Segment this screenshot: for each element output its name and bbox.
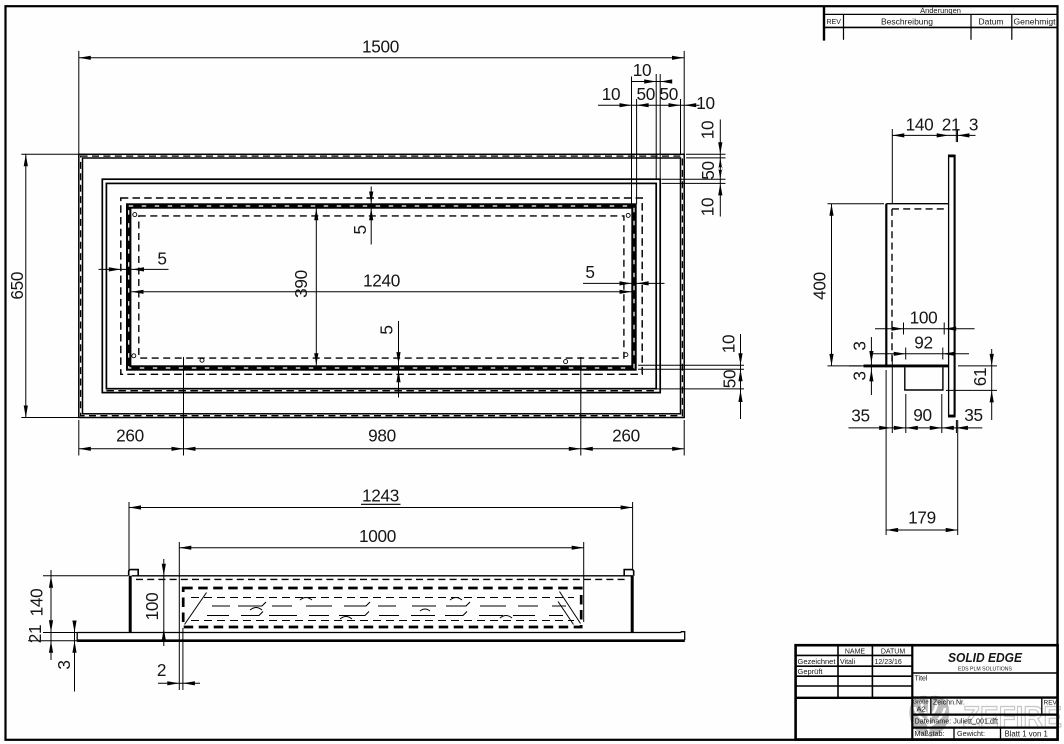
- svg-text:3: 3: [54, 660, 74, 669]
- svg-text:100: 100: [142, 593, 162, 621]
- svg-text:EDS PLM SOLUTIONS: EDS PLM SOLUTIONS: [958, 667, 1012, 673]
- svg-text:61: 61: [970, 368, 990, 387]
- svg-text:21: 21: [942, 114, 961, 134]
- svg-text:10: 10: [602, 84, 621, 104]
- svg-text:3: 3: [850, 371, 870, 380]
- svg-text:Zeichn.Nr.: Zeichn.Nr.: [933, 699, 965, 706]
- svg-text:Beschreibung: Beschreibung: [881, 17, 933, 27]
- svg-text:390: 390: [291, 270, 311, 298]
- svg-text:1240: 1240: [363, 271, 400, 291]
- svg-text:400: 400: [809, 272, 829, 300]
- svg-text:Vitali: Vitali: [840, 659, 855, 666]
- svg-text:1243: 1243: [362, 486, 399, 506]
- svg-text:5: 5: [157, 249, 166, 269]
- svg-text:260: 260: [612, 425, 640, 445]
- svg-text:140: 140: [906, 114, 934, 134]
- svg-text:Dateiname: Juliett_001.dft: Dateiname: Juliett_001.dft: [915, 717, 999, 726]
- svg-text:SOLID EDGE: SOLID EDGE: [948, 651, 1023, 665]
- svg-text:10: 10: [696, 93, 715, 113]
- svg-text:50: 50: [698, 161, 718, 180]
- svg-text:12/23/16: 12/23/16: [875, 659, 902, 666]
- svg-text:1000: 1000: [359, 526, 396, 546]
- svg-text:260: 260: [116, 425, 144, 445]
- svg-text:Geprüft: Geprüft: [798, 667, 824, 676]
- svg-text:21: 21: [25, 625, 45, 644]
- svg-text:10: 10: [697, 198, 717, 217]
- svg-text:5: 5: [585, 262, 594, 282]
- svg-text:980: 980: [368, 425, 396, 445]
- svg-text:Genehmigt: Genehmigt: [1014, 17, 1057, 27]
- svg-text:3: 3: [969, 114, 978, 134]
- svg-text:DATUM: DATUM: [881, 648, 906, 655]
- svg-text:Gewicht:: Gewicht:: [957, 729, 985, 738]
- svg-text:NAME: NAME: [845, 648, 866, 655]
- svg-text:92: 92: [914, 333, 933, 353]
- svg-text:Maßstab:: Maßstab:: [915, 729, 945, 738]
- svg-text:REV: REV: [826, 19, 841, 26]
- svg-text:10: 10: [633, 60, 652, 80]
- svg-text:10: 10: [697, 121, 717, 140]
- svg-text:50: 50: [719, 370, 739, 389]
- svg-text:A2: A2: [917, 705, 926, 714]
- svg-text:Gezeichnet: Gezeichnet: [798, 657, 837, 666]
- svg-text:140: 140: [27, 589, 47, 617]
- svg-text:35: 35: [964, 405, 983, 425]
- svg-text:REV: REV: [1044, 699, 1058, 706]
- svg-text:Datum: Datum: [978, 17, 1003, 27]
- svg-text:Blatt 1 von 1: Blatt 1 von 1: [1005, 729, 1048, 738]
- svg-text:650: 650: [7, 272, 27, 300]
- svg-text:5: 5: [350, 225, 370, 234]
- svg-text:Titel: Titel: [915, 676, 928, 683]
- svg-text:100: 100: [910, 308, 938, 328]
- svg-text:Änderungen: Änderungen: [920, 6, 961, 15]
- svg-text:3: 3: [850, 341, 870, 350]
- svg-text:35: 35: [851, 406, 870, 426]
- svg-text:5: 5: [376, 325, 396, 334]
- svg-text:50: 50: [637, 84, 656, 104]
- svg-text:179: 179: [908, 508, 936, 528]
- svg-text:90: 90: [913, 405, 932, 425]
- svg-text:1500: 1500: [362, 37, 399, 57]
- svg-text:50: 50: [660, 84, 679, 104]
- svg-text:10: 10: [718, 335, 738, 354]
- svg-text:2: 2: [157, 660, 166, 680]
